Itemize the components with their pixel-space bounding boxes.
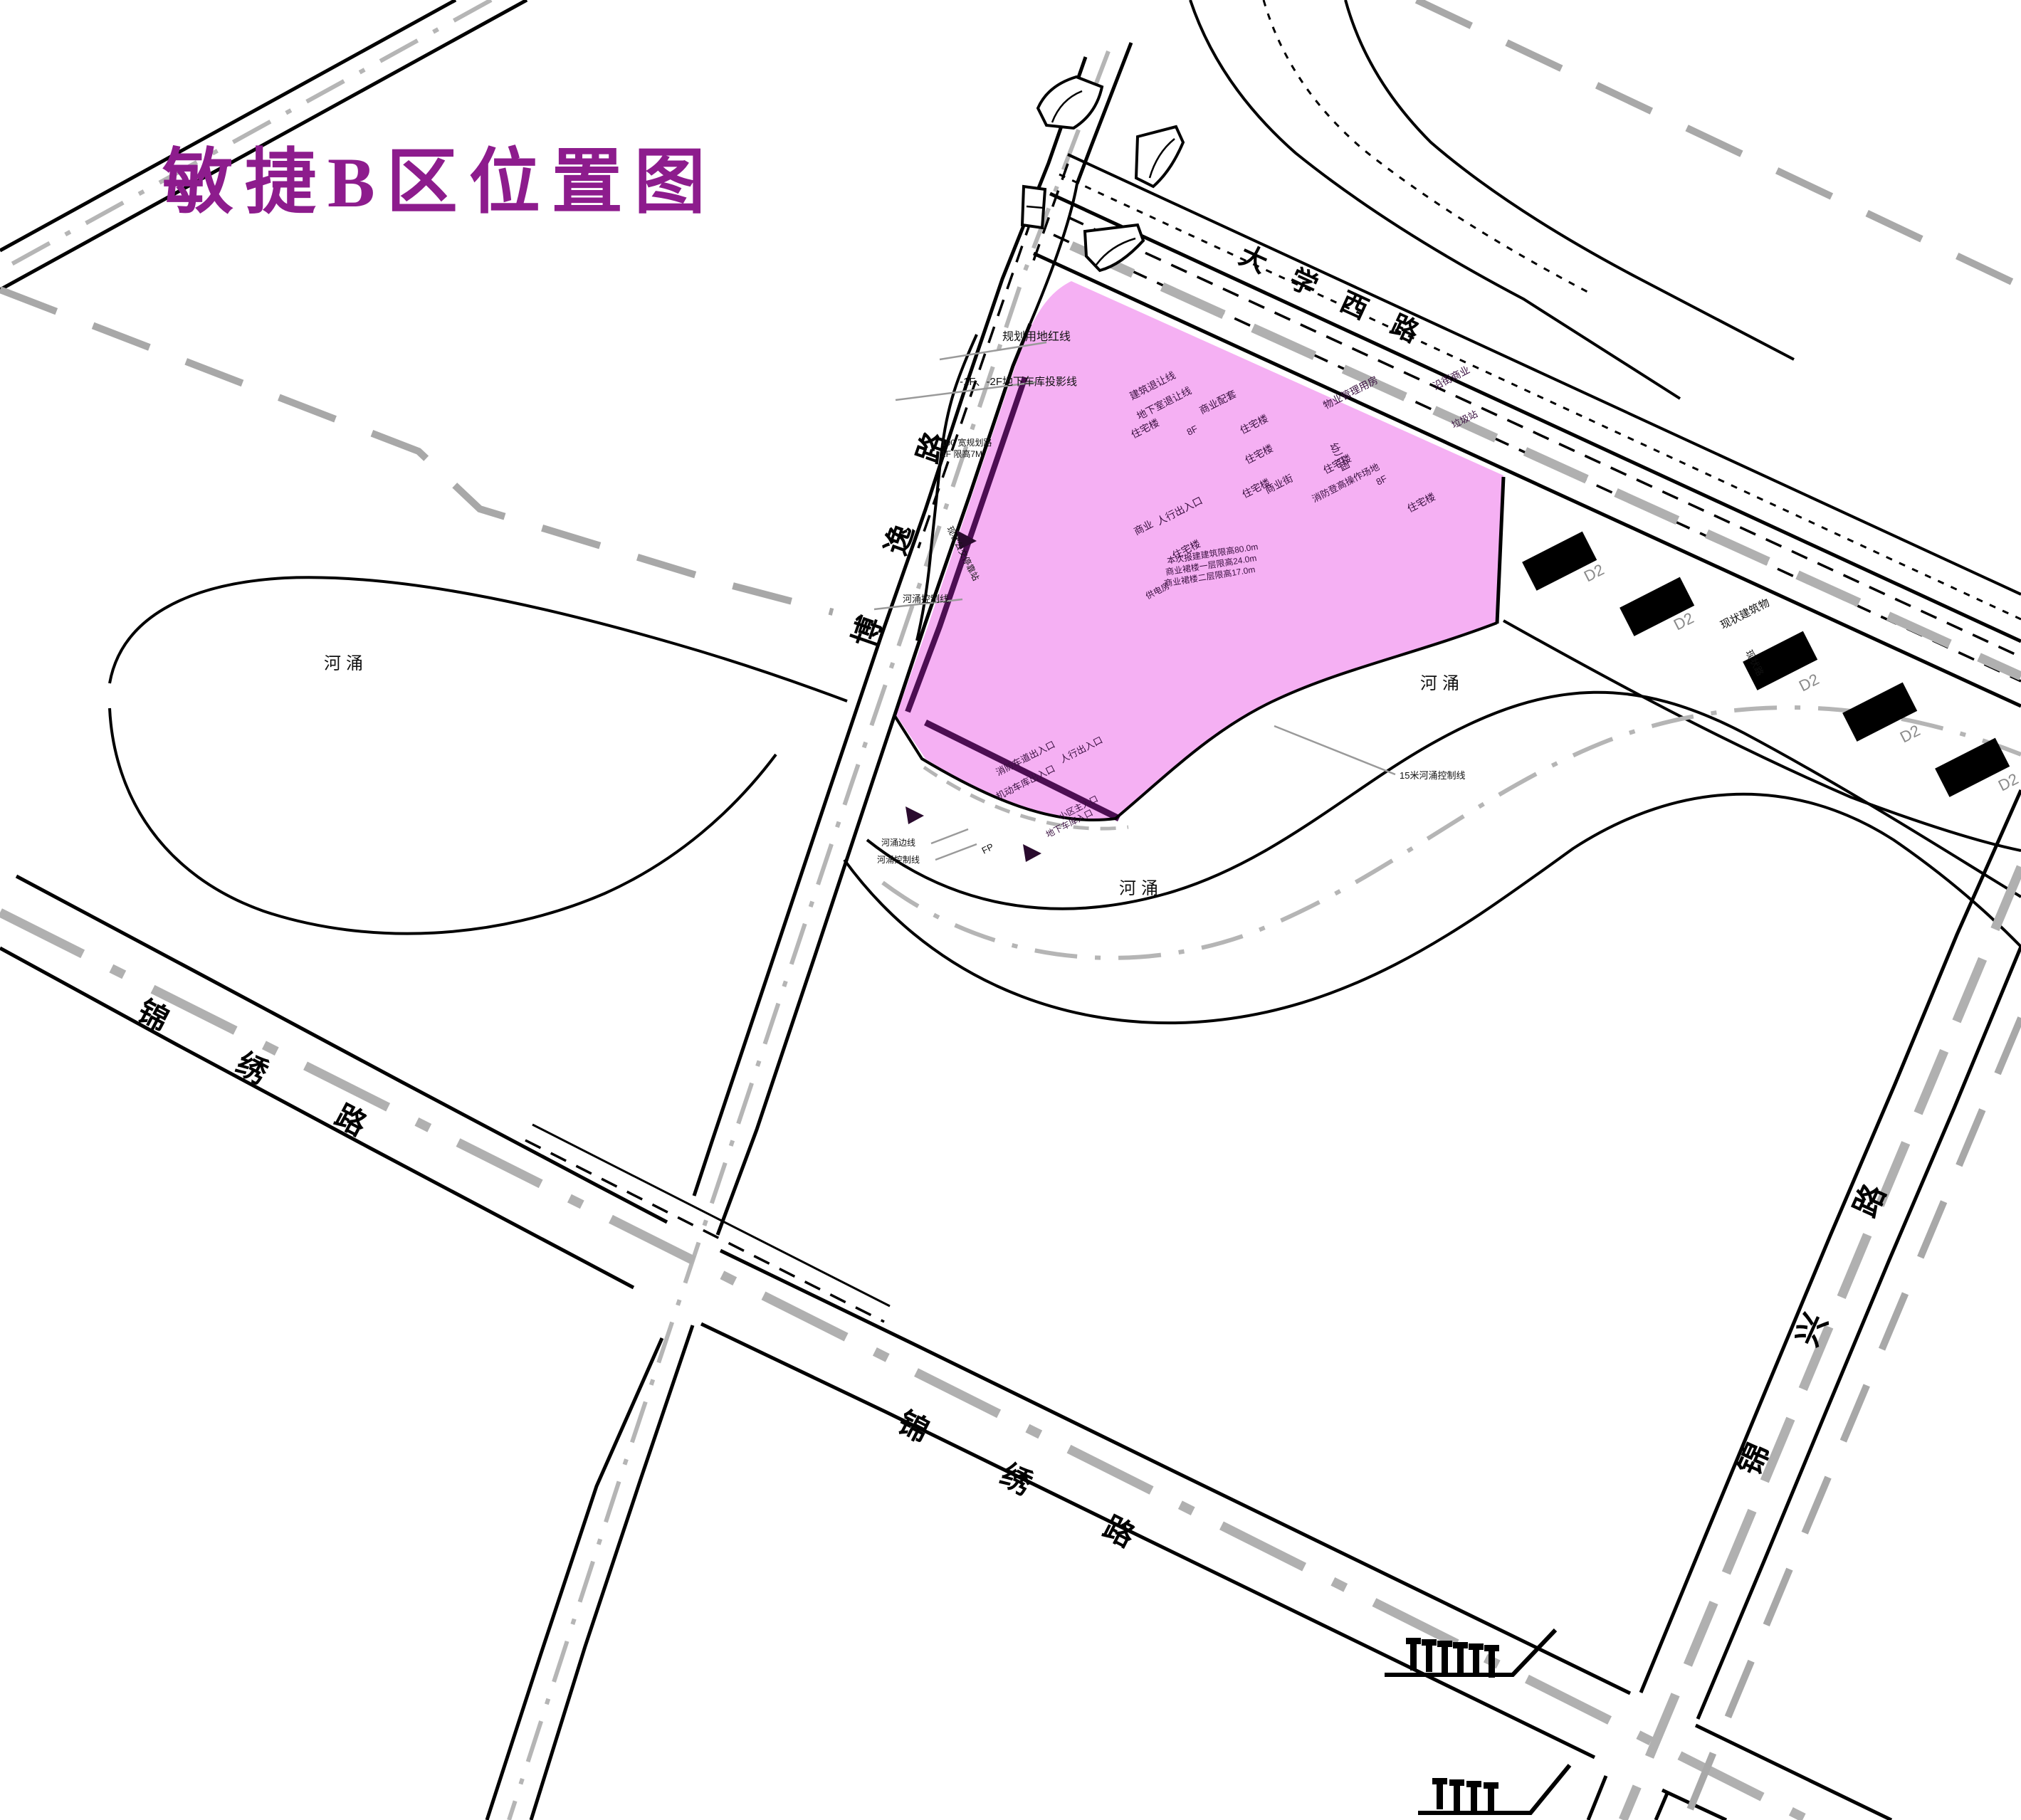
road-label-jinxiu-lu-south: 锦绣路 (892, 1406, 1215, 1593)
road-jinxiu-lu (0, 876, 1891, 1820)
map-note: 河涌控制线 (903, 594, 949, 604)
map-note: D2 (1897, 721, 1923, 746)
map-note: 1F 限高7M (941, 448, 982, 459)
map-note: D2 (1995, 769, 2021, 794)
map-note: FP (980, 841, 996, 856)
map-note: 现状建筑物 (1718, 596, 1772, 631)
map-note: 河涌控制线 (877, 855, 920, 865)
site-location-map: 大学西路 博逸路 锦绣路 锦绣路 锦兴路 河涌河涌河涌建筑退让线地下室退让线商业… (0, 0, 2021, 1820)
map-note: 沿街商业 (1431, 364, 1471, 392)
culvert-symbols (1385, 1630, 1570, 1814)
map-note: D2 (1796, 670, 1822, 695)
map-note: 河涌 (1119, 879, 1163, 898)
map-note: 规划用地红线 (1002, 330, 1071, 343)
traffic-islands (1022, 77, 1183, 270)
map-note: 河涌边线 (881, 838, 915, 848)
map-note: 河涌 (1420, 674, 1464, 693)
svg-text:锦绣路: 锦绣路 (892, 1406, 1215, 1593)
svg-text:锦兴路: 锦兴路 (1731, 1079, 1938, 1481)
map-canvas: 大学西路 博逸路 锦绣路 锦绣路 锦兴路 河涌河涌河涌建筑退让线地下室退让线商业… (0, 0, 2021, 1820)
map-note: -1F、-2F地下车库投影线 (960, 376, 1077, 388)
road-boyi-lu (487, 43, 1131, 1820)
map-title: 敏捷B区位置图 (162, 143, 717, 222)
map-note: 15米河涌控制线 (1400, 770, 1465, 781)
road-topleft (0, 0, 833, 612)
road-label-jinxing-lu: 锦兴路 (1731, 1079, 1938, 1481)
map-note: 河涌 (324, 654, 368, 673)
map-note: 100 宽规划路 (941, 437, 992, 448)
map-note: 物业管理用房 (1321, 374, 1380, 411)
